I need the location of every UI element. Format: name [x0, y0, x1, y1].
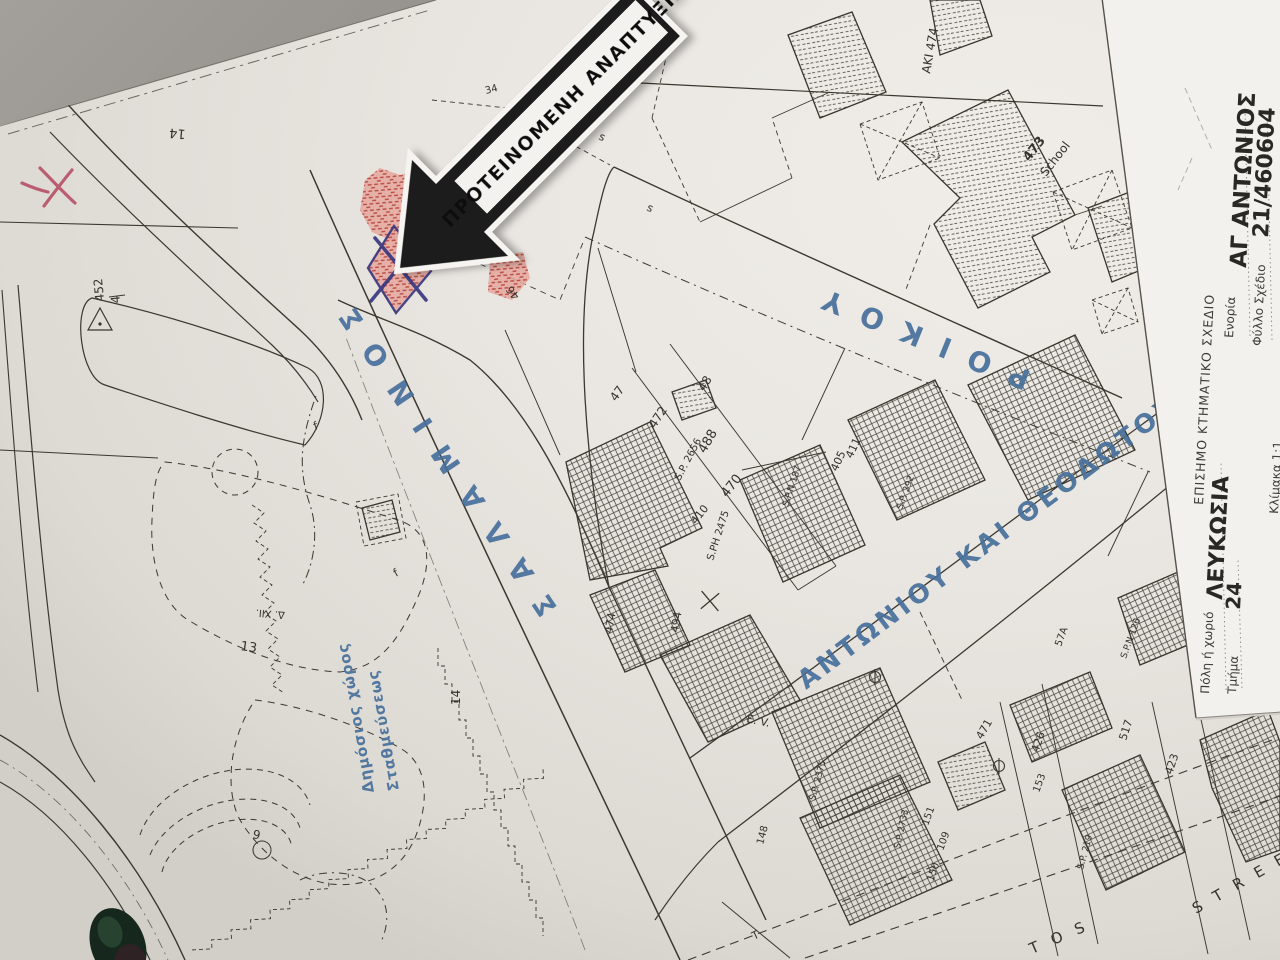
plot-label: 14: [449, 690, 463, 705]
section-label: Τμήμα: [1225, 655, 1241, 695]
road-left-edge: [18, 285, 95, 782]
boundary-mark: s: [645, 201, 656, 215]
arrow-label: ΠΡΟΤΕΙΝΟΜΕΝΗ ΑΝΑΠΤΥΞΗ: [438, 0, 686, 231]
plot-label: 151: [920, 805, 937, 827]
street-text-tos: TOS: [1026, 913, 1101, 958]
block-label: Δ. ΧΙΙ.: [255, 606, 285, 619]
parking-area-lines: [140, 396, 427, 944]
plot-label: 13: [239, 639, 257, 656]
sp-label: S.PH 2475: [705, 509, 731, 562]
road-bl-center: [0, 760, 168, 960]
t-label: T: [749, 928, 762, 943]
margin-ref-label: ΑΚΙ 474: [919, 26, 941, 74]
section-value: 24: [1221, 581, 1246, 610]
cross-icon: [692, 583, 727, 618]
road-curve-inner: [50, 132, 318, 402]
road-left-edge2: [2, 290, 38, 692]
plot-label: 452: [91, 278, 107, 302]
photo-of-cadastral-map: 15 51 14 452 4 13 Δ. ΧΙΙ. 14 9 46 47 472…: [0, 0, 1280, 960]
plot-label: 470: [718, 472, 745, 501]
road-centerline: [345, 335, 585, 950]
plot-label: 51: [131, 63, 149, 79]
plot-label: 109: [935, 830, 952, 852]
boundary-mark: s: [597, 130, 608, 144]
parcel-line: [0, 222, 238, 228]
plot-label: 57A: [1053, 626, 1070, 648]
plot-label: 423: [1162, 752, 1181, 776]
road-curve-outer: [62, 98, 362, 420]
plot-label: 47: [607, 383, 627, 404]
red-x-mark: [22, 168, 75, 206]
plot-label: 153: [1031, 772, 1048, 794]
plot-label: 34: [484, 83, 499, 97]
boundary-dashdot: [8, 10, 430, 134]
stair-zigzag-lines: [184, 505, 552, 950]
parish-label: Ενορία: [1222, 296, 1238, 338]
road-connector: [655, 842, 718, 920]
plot-label: 4: [108, 295, 123, 304]
plot-label: 15: [69, 75, 87, 91]
plot-label: 471: [973, 717, 995, 742]
plot-label: 14: [169, 125, 187, 141]
parcel-line: [0, 450, 158, 458]
arrow-sticker: ΠΡΟΤΕΙΝΟΜΕΝΗ ΑΝΑΠΤΥΞΗ: [352, 0, 726, 316]
survey-triangle-icon: [88, 308, 112, 330]
cadastral-map: 15 51 14 452 4 13 Δ. ΧΙΙ. 14 9 46 47 472…: [0, 0, 1280, 960]
clip-blob: [80, 900, 157, 960]
plot-label: 517: [1116, 718, 1135, 742]
street-name-salaminos: ΣΑΛΑΜΙΝΟΣ: [320, 283, 564, 622]
plot-label: 9: [251, 827, 261, 842]
school-building: [902, 90, 1075, 308]
paper-edge: [0, 0, 436, 126]
plot-label: 148: [755, 824, 771, 845]
turning-loop: [81, 298, 324, 445]
boundary-mark: f: [391, 566, 402, 580]
